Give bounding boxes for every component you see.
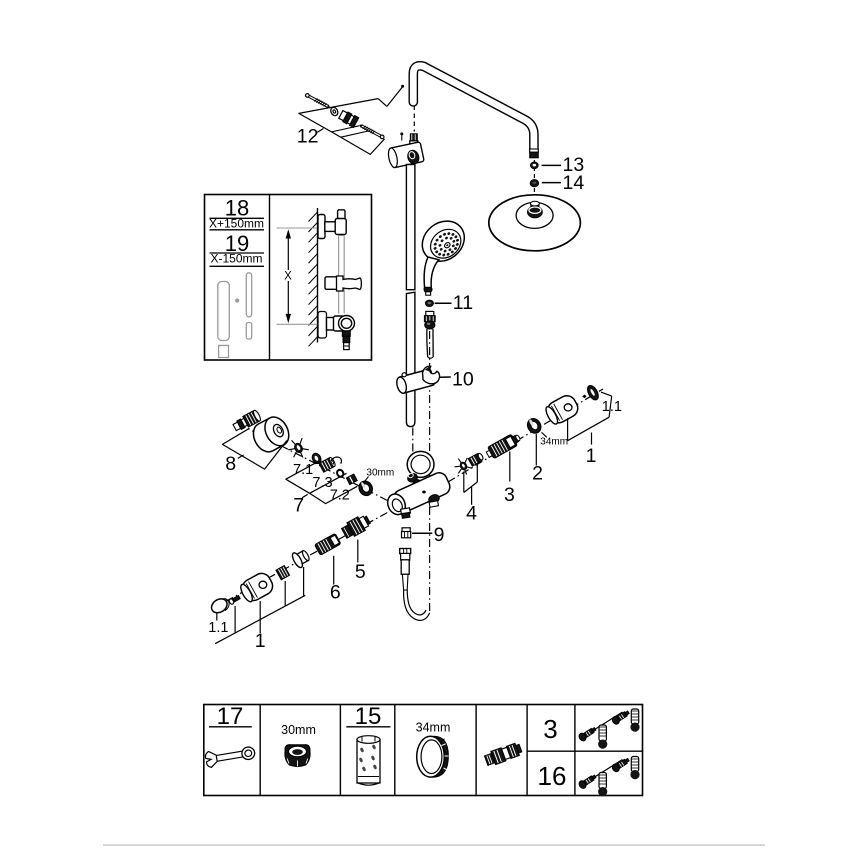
svg-text:7.1: 7.1 [293, 462, 313, 478]
svg-text:5: 5 [355, 561, 366, 583]
svg-text:3: 3 [504, 484, 515, 506]
svg-text:X: X [284, 270, 292, 282]
svg-text:7: 7 [293, 494, 304, 516]
svg-text:8: 8 [225, 453, 236, 475]
svg-text:2: 2 [532, 463, 543, 485]
svg-text:X+150mm: X+150mm [209, 216, 264, 230]
svg-text:30mm: 30mm [366, 467, 394, 478]
svg-text:11: 11 [453, 292, 473, 314]
svg-text:6: 6 [330, 581, 341, 603]
svg-text:X-150mm: X-150mm [210, 251, 262, 265]
svg-text:14: 14 [563, 172, 585, 194]
svg-text:7.2: 7.2 [330, 488, 350, 504]
svg-text:4: 4 [466, 502, 477, 524]
svg-text:34mm: 34mm [540, 437, 568, 448]
svg-text:17: 17 [217, 703, 244, 730]
svg-text:1: 1 [255, 630, 266, 652]
svg-text:10: 10 [452, 369, 474, 391]
svg-text:1.1: 1.1 [208, 620, 228, 636]
svg-text:15: 15 [355, 703, 382, 730]
svg-text:34mm: 34mm [416, 720, 451, 734]
svg-text:3: 3 [543, 714, 557, 744]
svg-text:1: 1 [586, 445, 597, 467]
svg-text:30mm: 30mm [281, 723, 316, 737]
svg-text:1.1: 1.1 [602, 399, 622, 415]
svg-text:16: 16 [538, 761, 567, 791]
svg-text:12: 12 [297, 125, 319, 147]
svg-text:9: 9 [434, 524, 445, 546]
